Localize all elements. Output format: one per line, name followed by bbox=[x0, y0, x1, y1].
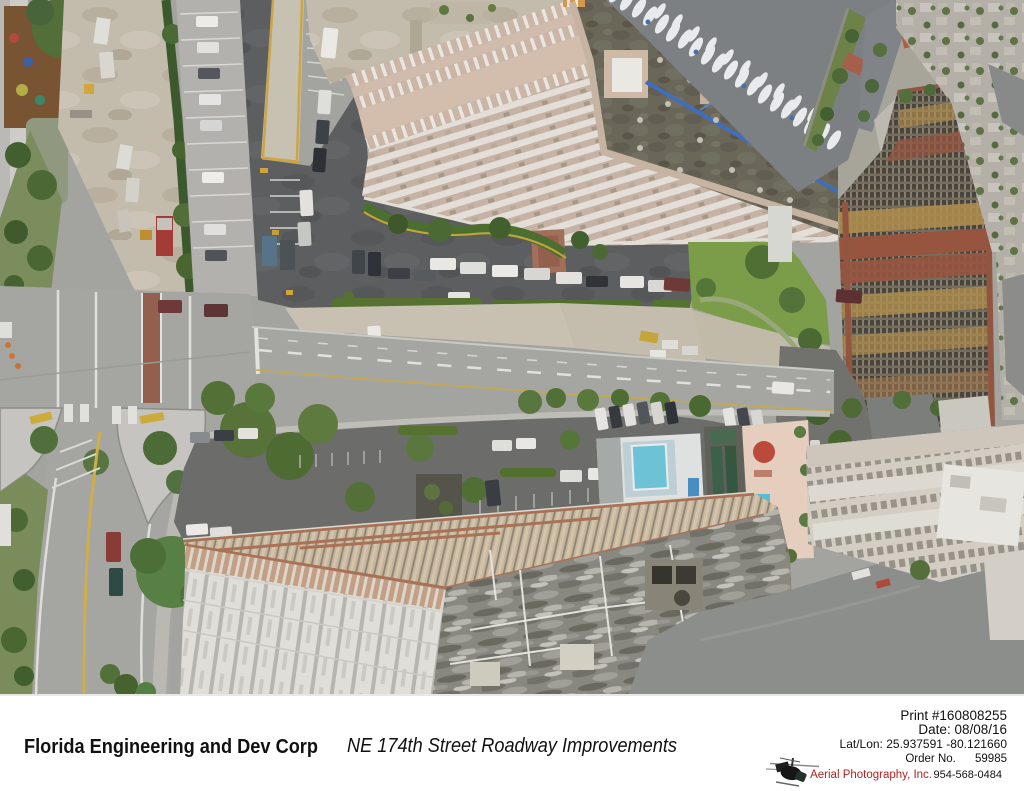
svg-text:Date: 08/08/16: Date: 08/08/16 bbox=[918, 722, 1007, 737]
svg-text:954-568-0484: 954-568-0484 bbox=[933, 769, 1002, 781]
svg-text:Order No. 59985: Order No. 59985 bbox=[905, 753, 1007, 765]
svg-text:Lat/Lon: 25.937591 -80.121660: Lat/Lon: 25.937591 -80.121660 bbox=[840, 737, 1008, 751]
svg-text:Print #160808255: Print #160808255 bbox=[900, 708, 1007, 723]
svg-text:Aerial Photography, Inc.: Aerial Photography, Inc. bbox=[810, 769, 932, 781]
svg-text:Florida Engineering and Dev Co: Florida Engineering and Dev Corp bbox=[24, 736, 318, 758]
svg-text:NE 174th Street Roadway Improv: NE 174th Street Roadway Improvements bbox=[347, 735, 677, 757]
